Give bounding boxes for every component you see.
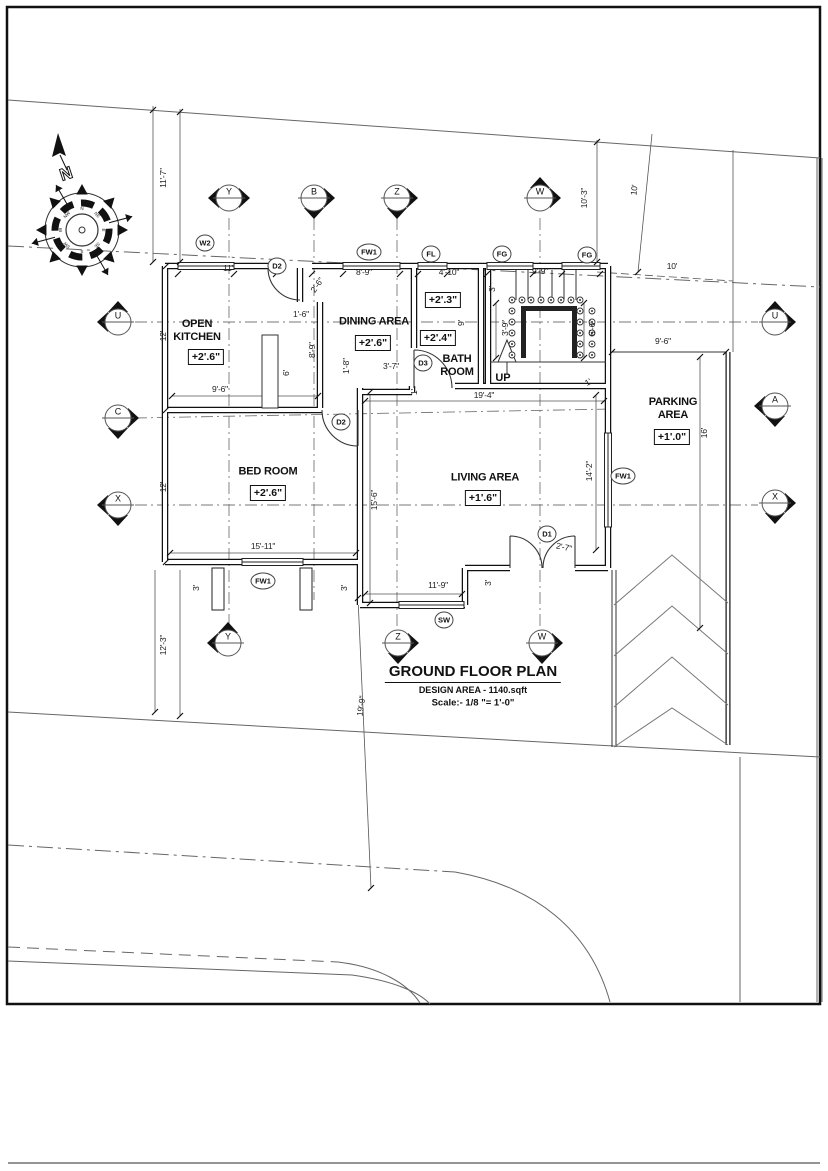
svg-text:A: A xyxy=(772,395,778,405)
room-label-living-area: LIVING AREA xyxy=(451,472,519,485)
svg-text:W: W xyxy=(536,187,545,197)
dimension-label: 3' xyxy=(339,585,349,591)
dimension-label: 3'-9" xyxy=(500,320,510,336)
tag-fg: FG xyxy=(578,247,597,264)
svg-text:B: B xyxy=(311,187,317,197)
dimension-label: 11'-7" xyxy=(158,168,168,188)
dimension-label: 3' xyxy=(487,286,497,292)
driveway-chevrons xyxy=(614,555,728,747)
svg-text:C: C xyxy=(115,407,122,417)
svg-text:Z: Z xyxy=(394,187,400,197)
dimension-label: 12'-3" xyxy=(158,635,168,655)
room-label-parking-area: PARKING AREA xyxy=(633,396,713,422)
dimension-label: 6' xyxy=(281,370,291,376)
dimension-label: 3' xyxy=(483,580,493,586)
stair-rails xyxy=(521,306,577,358)
tag-w2: W2 xyxy=(196,235,215,252)
compass-direction-label: S xyxy=(80,249,83,254)
grid-marker-u: U xyxy=(759,301,796,335)
stair-direction-label: UP xyxy=(495,372,510,384)
tag-fl: FL xyxy=(422,246,441,263)
dimension-label: 9' xyxy=(456,320,466,326)
dimension-label: 16' xyxy=(699,428,709,438)
kitchen-counter xyxy=(262,335,278,408)
compass-direction-label: N xyxy=(80,206,83,211)
dimension-label: 1'-8" xyxy=(341,358,351,374)
svg-text:U: U xyxy=(772,311,779,321)
north-arrow-label: N xyxy=(57,163,75,185)
dimension-label: 3'-7" xyxy=(383,361,399,371)
tag-d2: D2 xyxy=(332,414,351,431)
dimension-label: 15'-11" xyxy=(251,541,275,551)
tag-d1: D1 xyxy=(538,526,557,543)
dimension-label: 9'-6" xyxy=(655,336,671,346)
floor-plan-linework: N NNEESESSWWNW YBZWYZWUCXUAX xyxy=(0,0,828,1171)
grid-marker-y: Y xyxy=(207,622,244,656)
dimension-lines xyxy=(153,106,733,888)
compass-point-n xyxy=(76,184,87,194)
level-dining-area: +2'.6" xyxy=(355,335,391,351)
dimension-label: 15'-6" xyxy=(369,490,379,510)
grid-marker-c: C xyxy=(102,405,139,439)
svg-text:Y: Y xyxy=(226,187,232,197)
grid-marker-y: Y xyxy=(208,185,250,211)
compass-point-s xyxy=(76,266,87,276)
windows xyxy=(178,263,612,609)
tag-fw1: FW1 xyxy=(357,244,382,261)
level-bath-upper: +2'.3" xyxy=(425,292,461,308)
grid-marker-u: U xyxy=(97,301,134,335)
dimension-label: 11' xyxy=(223,263,233,273)
dimension-label: 10' xyxy=(667,261,677,271)
dimension-label: 10'-3" xyxy=(579,188,589,208)
dimension-label: 3' xyxy=(191,585,201,591)
compass-point-sw xyxy=(49,251,60,262)
level-bed-room: +2'.6" xyxy=(250,485,286,501)
dimension-label: 14'-2" xyxy=(584,461,594,481)
svg-text:X: X xyxy=(115,494,121,504)
compass-rose: N NNEESESSWWNW xyxy=(32,133,132,276)
svg-text:W: W xyxy=(538,632,547,642)
grid-marker-w: W xyxy=(526,630,563,664)
grid-marker-w: W xyxy=(524,177,561,211)
dimension-label: 8'-9" xyxy=(356,267,372,277)
compass-point-w xyxy=(36,224,46,235)
room-label-bath-room: BATH ROOM xyxy=(429,353,485,379)
room-label-bed-room: BED ROOM xyxy=(239,466,298,479)
compass-point-ne xyxy=(103,197,114,208)
drawing-title: GROUND FLOOR PLAN xyxy=(385,663,561,683)
grid-marker-a: A xyxy=(754,393,791,427)
dimension-label: 19'-4" xyxy=(474,390,494,400)
dimension-label: 1'-6" xyxy=(293,309,309,319)
room-label-open-kitchen: OPEN KITCHEN xyxy=(157,318,237,344)
svg-text:Y: Y xyxy=(225,632,231,642)
dimension-label: 12' xyxy=(158,331,168,341)
drawing-sheet: N NNEESESSWWNW YBZWYZWUCXUAX OPEN KITCHE… xyxy=(0,0,828,1171)
level-parking-area: +1'.0" xyxy=(654,429,690,445)
scale-note: Scale:- 1/8 "= 1'-0" xyxy=(432,698,515,709)
grid-marker-z: Z xyxy=(381,185,418,219)
dimension-ticks xyxy=(150,107,729,891)
dimension-label: 1' xyxy=(409,389,419,395)
tag-fw1: FW1 xyxy=(611,468,636,485)
compass-point-nw xyxy=(49,197,60,208)
grid-marker-x: X xyxy=(97,492,134,526)
room-label-dining-area: DINING AREA xyxy=(339,316,409,329)
svg-text:U: U xyxy=(115,311,122,321)
compass-direction-label: W xyxy=(58,227,63,232)
design-area-note: DESIGN AREA - 1140.sqft xyxy=(419,685,527,695)
grid-lines xyxy=(135,218,758,630)
dimension-label: 12' xyxy=(158,482,168,492)
level-living-area: +1'.6" xyxy=(465,490,501,506)
svg-text:X: X xyxy=(772,492,778,502)
dimension-label: 9'-6" xyxy=(212,384,228,394)
dimension-label: 4'-10" xyxy=(439,267,459,277)
dimension-label: 11'-9" xyxy=(428,580,448,590)
compass-direction-label: E xyxy=(101,228,106,231)
compass-point-se xyxy=(103,251,114,262)
tag-d2: D2 xyxy=(268,258,287,275)
tag-fg: FG xyxy=(493,246,512,263)
dimension-label: 6'-6" xyxy=(587,320,597,336)
dimension-label: 10' xyxy=(628,184,639,196)
dimension-label: 9'-9" xyxy=(532,266,548,276)
level-open-kitchen: +2'.6" xyxy=(188,349,224,365)
grid-marker-b: B xyxy=(298,185,335,219)
level-bath: +2'.4" xyxy=(420,330,456,346)
dimension-label: 8'-9" xyxy=(307,342,317,358)
tag-fw1: FW1 xyxy=(251,573,276,590)
compass-point-e xyxy=(118,224,128,235)
svg-text:Z: Z xyxy=(395,632,401,642)
tag-d3: D3 xyxy=(414,355,433,372)
tag-sw: SW xyxy=(435,612,454,629)
grid-marker-z: Z xyxy=(382,630,419,664)
grid-marker-x: X xyxy=(759,490,796,524)
